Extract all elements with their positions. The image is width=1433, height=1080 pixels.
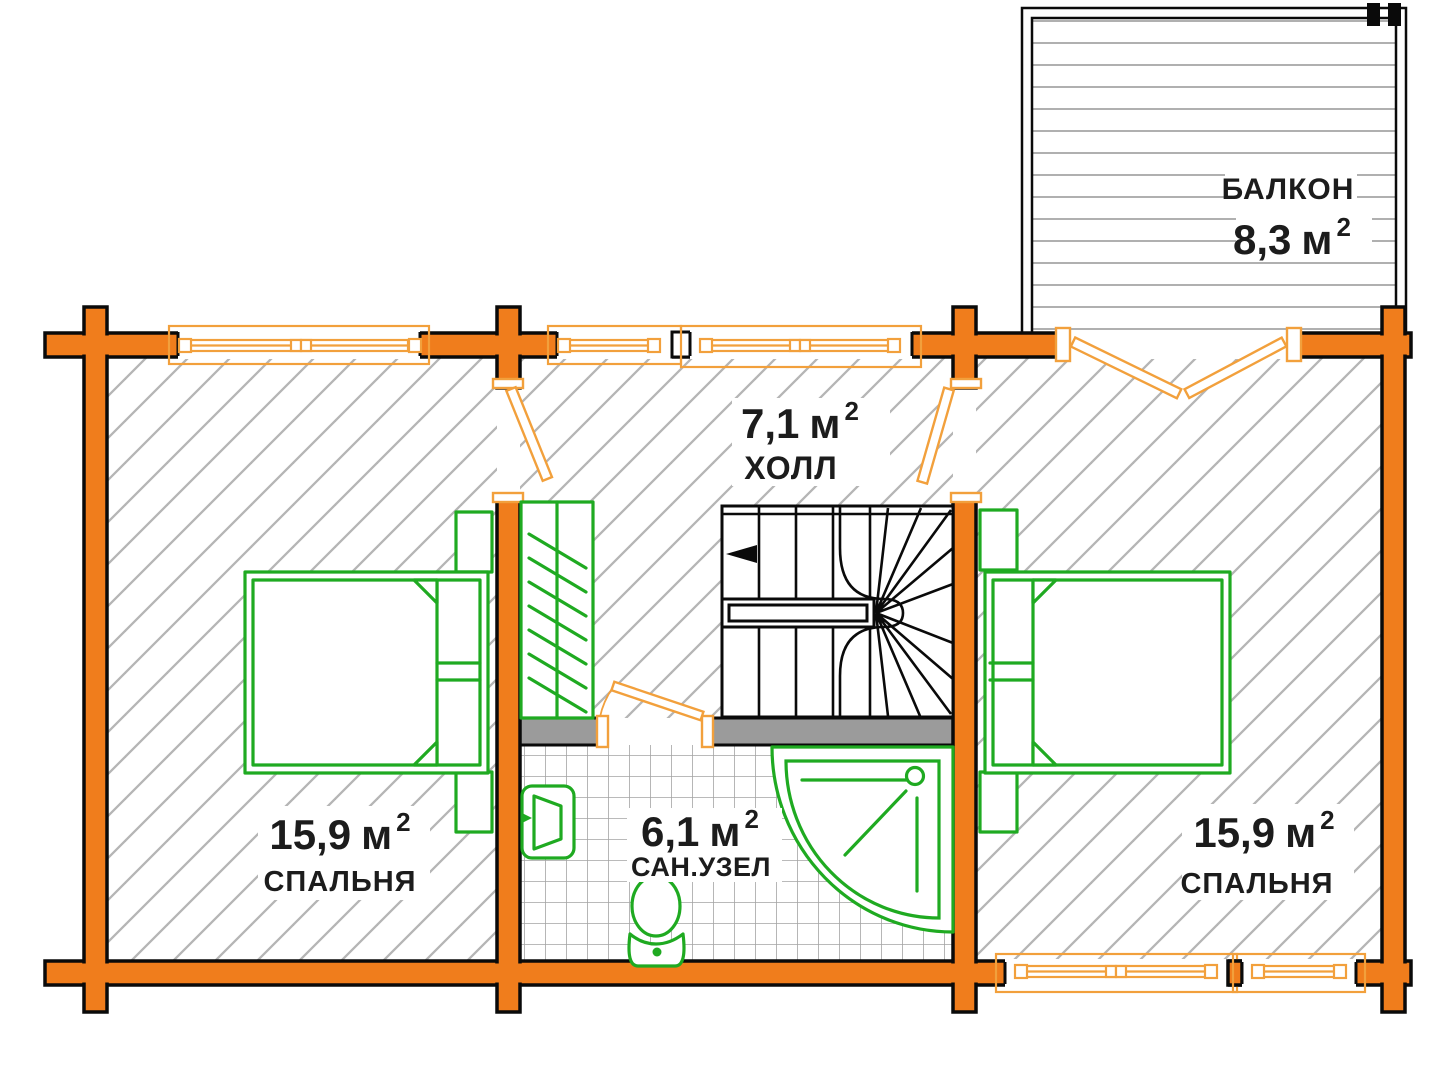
- window-bedroom-left: [169, 326, 429, 364]
- sink: [522, 786, 574, 858]
- bedroom-right-area-label: 15,9м2: [1193, 805, 1334, 856]
- wardrobe: [521, 502, 593, 718]
- floor-plan-page: 7,1м2 ХОЛЛ 6,1м2 САН.УЗЕЛ 15,9м2 СПАЛЬНЯ…: [0, 0, 1433, 1080]
- wall-left: [84, 307, 107, 1012]
- staircase: [722, 506, 953, 717]
- bathroom-name-label: САН.УЗЕЛ: [631, 852, 771, 882]
- nightstand: [980, 510, 1017, 570]
- toilet: [629, 876, 684, 966]
- bedroom-left-area-label: 15,9м2: [269, 807, 410, 858]
- window-mullion-bedroom-right: [1228, 961, 1242, 985]
- hall-name-label: ХОЛЛ: [744, 450, 838, 486]
- bedroom-right-name-label: СПАЛЬНЯ: [1180, 868, 1333, 900]
- balcony: [1022, 3, 1406, 333]
- nightstand: [980, 772, 1017, 832]
- balcony-post: [1367, 3, 1380, 26]
- floor-plan: 7,1м2 ХОЛЛ 6,1м2 САН.УЗЕЛ 15,9м2 СПАЛЬНЯ…: [0, 0, 1433, 1080]
- nightstand: [456, 512, 492, 572]
- wall-right: [1382, 307, 1405, 1012]
- partition-wall: [520, 718, 953, 745]
- nightstand: [456, 772, 492, 832]
- window-bedroom-right-2: [1233, 954, 1365, 992]
- wall-b-bottom: [953, 496, 976, 1012]
- window-bedroom-right-1: [996, 954, 1237, 992]
- balcony-post: [1388, 3, 1401, 26]
- window-hall-left: [548, 326, 681, 364]
- balcony-name-label: БАЛКОН: [1222, 173, 1355, 206]
- wall-a-bottom: [497, 496, 520, 1012]
- bedroom-left-name-label: СПАЛЬНЯ: [263, 866, 416, 898]
